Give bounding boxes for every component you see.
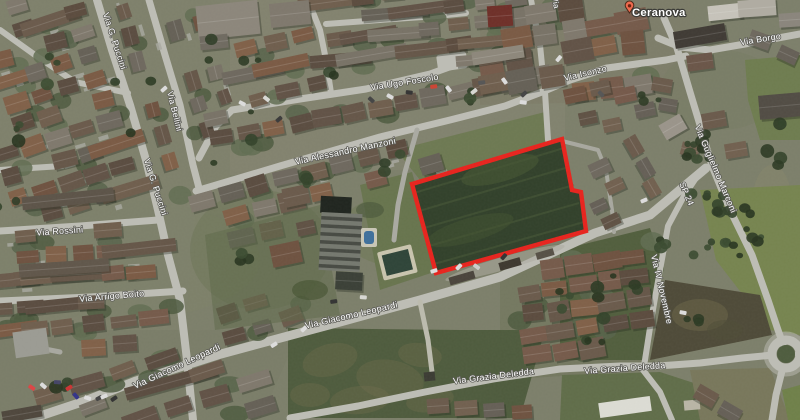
svg-text:Ceranova: Ceranova xyxy=(632,7,686,19)
